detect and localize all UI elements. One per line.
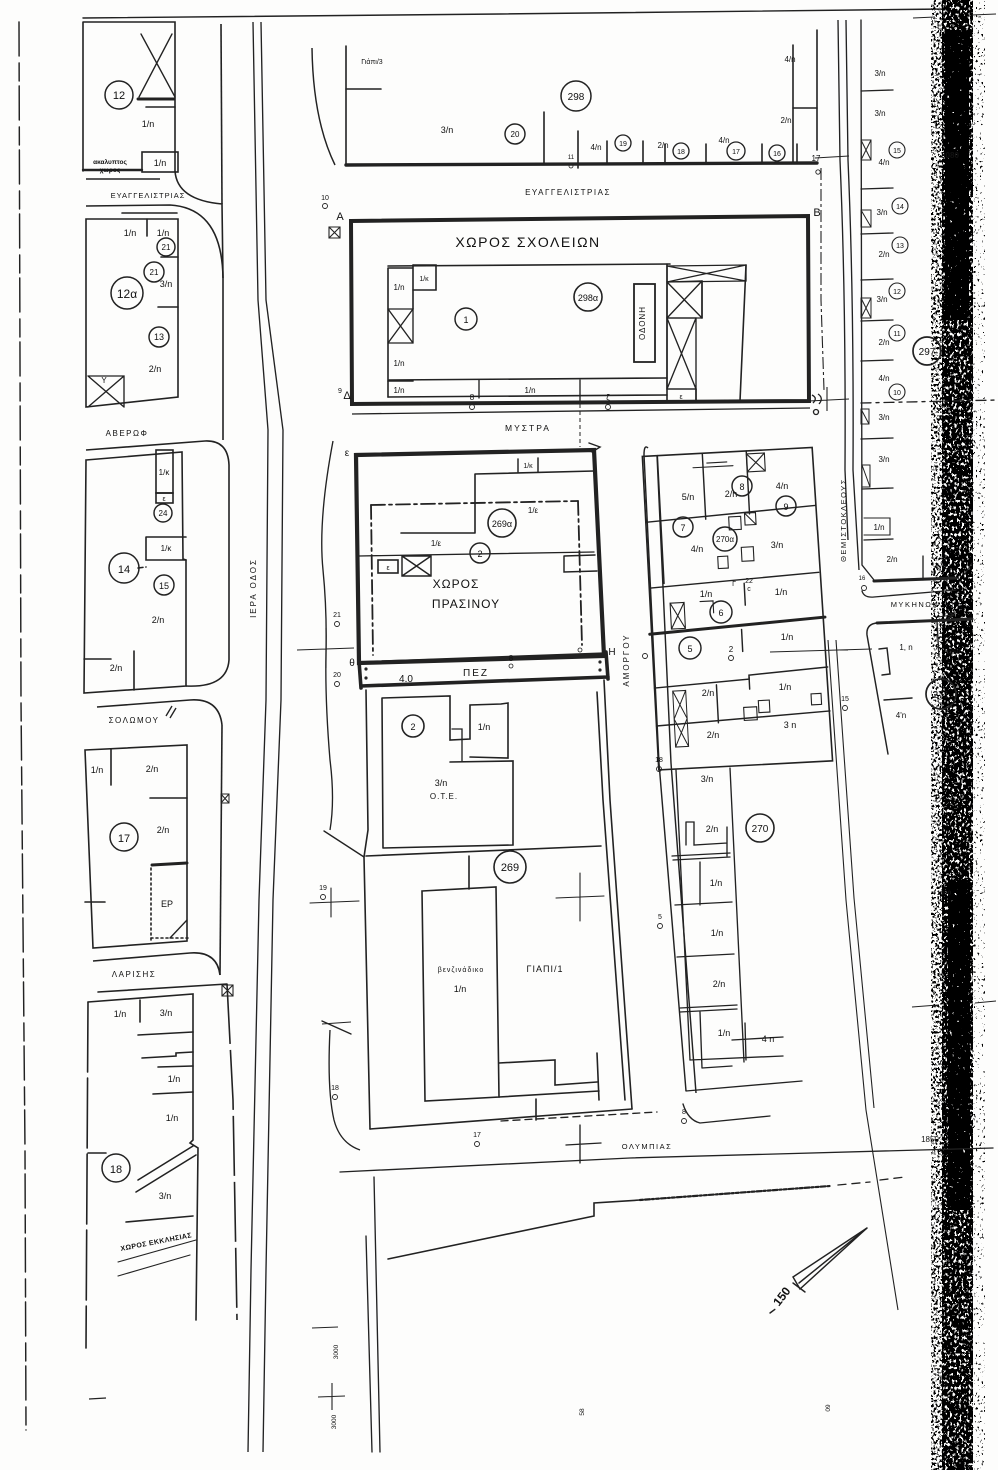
- svg-text:Υ: Υ: [101, 376, 107, 385]
- svg-text:6: 6: [718, 608, 723, 618]
- svg-text:15: 15: [893, 148, 901, 155]
- svg-text:2/n: 2/n: [878, 250, 889, 259]
- svg-text:8: 8: [470, 393, 475, 402]
- svg-text:ΕΥΑΓΓΕΛΙΣΤΡΙΑΣ: ΕΥΑΓΓΕΛΙΣΤΡΙΑΣ: [111, 191, 186, 200]
- svg-text:2/n: 2/n: [713, 979, 726, 989]
- svg-text:3 n: 3 n: [784, 720, 797, 730]
- svg-text:3000: 3000: [333, 1344, 340, 1359]
- svg-text:1/n: 1/n: [157, 228, 170, 238]
- svg-text:15: 15: [841, 696, 849, 703]
- svg-text:13: 13: [154, 332, 164, 342]
- svg-text:3/n: 3/n: [435, 778, 448, 788]
- svg-text:2/n: 2/n: [702, 688, 715, 698]
- svg-text:10: 10: [893, 390, 901, 397]
- svg-text:1850: 1850: [946, 649, 961, 656]
- svg-text:21: 21: [150, 268, 159, 277]
- svg-text:10: 10: [321, 195, 329, 202]
- svg-text:1/n: 1/n: [710, 878, 723, 888]
- svg-text:9: 9: [783, 502, 788, 512]
- svg-text:1/n: 1/n: [718, 1028, 731, 1038]
- svg-text:270: 270: [752, 824, 769, 835]
- svg-text:ε: ε: [162, 496, 165, 503]
- svg-text:A: A: [336, 211, 344, 223]
- svg-text:2/n: 2/n: [706, 824, 719, 834]
- svg-text:1/n: 1/n: [393, 359, 404, 368]
- svg-text:24: 24: [159, 509, 168, 518]
- svg-text:1/n: 1/n: [91, 765, 104, 775]
- svg-text:16: 16: [859, 576, 866, 582]
- svg-text:ΧΩΡΟΣ ΣΧΟΛΕΙΩΝ: ΧΩΡΟΣ ΣΧΟΛΕΙΩΝ: [455, 234, 600, 250]
- svg-text:3/n: 3/n: [876, 295, 887, 304]
- svg-text:1/κ: 1/κ: [161, 544, 173, 553]
- svg-text:βενζινάδικο: βενζινάδικο: [438, 966, 484, 974]
- svg-text:11: 11: [568, 155, 575, 161]
- svg-text:ΧΩΡΟΣ: ΧΩΡΟΣ: [433, 577, 480, 591]
- svg-text:17: 17: [732, 149, 740, 156]
- svg-text:4/n: 4/n: [718, 136, 729, 145]
- svg-text:4/n: 4/n: [784, 55, 795, 64]
- svg-text:ΑΜΟΡΓΟΥ: ΑΜΟΡΓΟΥ: [622, 633, 631, 686]
- svg-text:21: 21: [162, 243, 171, 252]
- svg-text:2/n: 2/n: [157, 825, 170, 835]
- svg-text:1/n: 1/n: [154, 158, 167, 168]
- svg-text:297: 297: [919, 347, 936, 358]
- svg-text:2/n: 2/n: [878, 338, 889, 347]
- svg-text:Γιάπι/3: Γιάπι/3: [361, 58, 382, 66]
- svg-text:1/n: 1/n: [454, 984, 467, 994]
- svg-text:ΕΥΑΓΓΕΛΙΣΤΡΙΑΣ: ΕΥΑΓΓΕΛΙΣΤΡΙΑΣ: [525, 188, 611, 197]
- svg-text:21: 21: [333, 612, 341, 619]
- svg-text:2/n: 2/n: [886, 555, 897, 564]
- svg-text:1/n: 1/n: [166, 1113, 179, 1123]
- svg-text:19: 19: [319, 885, 327, 892]
- svg-text:4/n: 4/n: [691, 544, 704, 554]
- svg-text:7: 7: [680, 523, 685, 533]
- svg-text:2/n: 2/n: [707, 730, 720, 740]
- svg-text:16: 16: [773, 151, 781, 158]
- svg-text:3/n: 3/n: [771, 540, 784, 550]
- svg-text:17: 17: [812, 154, 821, 163]
- svg-text:1/κ: 1/κ: [523, 463, 533, 470]
- svg-text:1/n: 1/n: [114, 1009, 127, 1019]
- svg-text:ΙΕΡΑ ΟΔΟΣ: ΙΕΡΑ ΟΔΟΣ: [249, 558, 258, 618]
- svg-text:11: 11: [893, 331, 900, 338]
- svg-text:12: 12: [113, 90, 125, 102]
- svg-text:2/n: 2/n: [657, 141, 668, 150]
- svg-text:2/n: 2/n: [110, 663, 123, 673]
- svg-text:1/n: 1/n: [935, 562, 946, 571]
- svg-text:ακαλυπτος: ακαλυπτος: [93, 158, 127, 166]
- svg-text:269α: 269α: [492, 519, 512, 529]
- svg-text:271: 271: [933, 690, 950, 701]
- svg-text:2/n: 2/n: [780, 116, 791, 125]
- svg-text:2: 2: [477, 549, 482, 559]
- svg-text:ε: ε: [345, 448, 350, 459]
- svg-text:1820: 1820: [941, 1382, 956, 1389]
- svg-text:Δ: Δ: [343, 390, 351, 402]
- svg-text:3/n: 3/n: [878, 413, 889, 422]
- svg-text:ε: ε: [386, 565, 389, 572]
- svg-text:3080: 3080: [941, 151, 959, 160]
- svg-text:5: 5: [658, 914, 662, 921]
- svg-text:4/n: 4/n: [590, 143, 601, 152]
- svg-text:4.0: 4.0: [399, 674, 413, 685]
- svg-text:1/κ: 1/κ: [419, 276, 429, 283]
- svg-text:18: 18: [331, 1085, 339, 1092]
- svg-text:12: 12: [893, 289, 901, 296]
- svg-text:58: 58: [579, 1408, 586, 1416]
- svg-text:ΣΟΛΩΜΟΥ: ΣΟΛΩΜΟΥ: [109, 716, 160, 725]
- svg-text:1/ε: 1/ε: [528, 506, 539, 515]
- svg-text:09: 09: [825, 1404, 832, 1412]
- svg-text:1/n: 1/n: [775, 587, 788, 597]
- svg-text:ε: ε: [679, 394, 682, 401]
- svg-text:1/n: 1/n: [478, 722, 491, 732]
- svg-text:1/n: 1/n: [781, 632, 794, 642]
- svg-text:ΟΛΥΜΠΙΑΣ: ΟΛΥΜΠΙΑΣ: [622, 1142, 673, 1151]
- svg-text:8: 8: [509, 654, 514, 663]
- svg-text:4/n: 4/n: [878, 158, 889, 167]
- svg-text:ΛΑΡΙΣΗΣ: ΛΑΡΙΣΗΣ: [112, 970, 156, 979]
- svg-text:22: 22: [745, 578, 753, 585]
- svg-text:χωρος: χωρος: [100, 167, 121, 174]
- svg-text:c: c: [747, 586, 751, 593]
- svg-text:1/n: 1/n: [168, 1074, 181, 1084]
- svg-text:4'n: 4'n: [896, 711, 906, 720]
- svg-text:1/n: 1/n: [393, 386, 404, 395]
- svg-text:1850: 1850: [921, 1135, 939, 1144]
- svg-text:12α: 12α: [117, 287, 137, 301]
- svg-text:θ: θ: [349, 658, 355, 669]
- svg-text:1/n: 1/n: [779, 682, 792, 692]
- svg-text:17: 17: [118, 833, 130, 845]
- svg-text:8: 8: [682, 1109, 686, 1116]
- svg-text:Η: Η: [608, 647, 615, 658]
- svg-text:9: 9: [338, 388, 342, 395]
- svg-text:Ο.Τ.Ε.: Ο.Τ.Ε.: [430, 792, 458, 801]
- svg-text:20: 20: [333, 672, 341, 679]
- svg-text:2: 2: [410, 722, 415, 732]
- svg-text:3/n: 3/n: [441, 125, 454, 135]
- svg-text:2/n: 2/n: [149, 364, 162, 374]
- svg-text:270α: 270α: [716, 535, 734, 544]
- svg-text:3/n: 3/n: [876, 208, 887, 217]
- svg-text:17: 17: [473, 1132, 481, 1139]
- svg-text:1/ε: 1/ε: [431, 539, 442, 548]
- svg-text:19: 19: [619, 141, 627, 148]
- svg-text:4 n: 4 n: [762, 1034, 775, 1044]
- svg-text:ΟΔΟΝΗ: ΟΔΟΝΗ: [638, 306, 647, 340]
- svg-text:3/n: 3/n: [159, 1191, 172, 1201]
- svg-text:1/n: 1/n: [711, 928, 724, 938]
- svg-text:298α: 298α: [578, 293, 598, 303]
- svg-text:15: 15: [159, 581, 169, 591]
- svg-text:ΑΒΕΡΩΦ: ΑΒΕΡΩΦ: [106, 429, 149, 438]
- svg-text:3000: 3000: [331, 1414, 338, 1429]
- svg-text:ΘΕΜΙΣΤΟΚΛΕΟΥΣ: ΘΕΜΙΣΤΟΚΛΕΟΥΣ: [839, 478, 848, 562]
- svg-text:14: 14: [896, 204, 904, 211]
- svg-text:ΠΕΖ: ΠΕΖ: [463, 668, 489, 679]
- svg-text:14: 14: [118, 564, 130, 576]
- svg-text:3/n: 3/n: [878, 455, 889, 464]
- svg-text:18: 18: [110, 1164, 122, 1176]
- svg-text:ΕΡ: ΕΡ: [161, 899, 173, 909]
- svg-text:5/n: 5/n: [682, 492, 695, 502]
- svg-text:1/κ: 1/κ: [159, 468, 171, 477]
- svg-text:4/n: 4/n: [776, 481, 789, 491]
- svg-text:1/n: 1/n: [393, 283, 404, 292]
- svg-text:269: 269: [501, 862, 519, 874]
- svg-text:8: 8: [739, 482, 744, 492]
- svg-text:298: 298: [568, 92, 585, 103]
- svg-text:3/n: 3/n: [874, 109, 885, 118]
- svg-text:3/n: 3/n: [160, 279, 173, 289]
- svg-text:18: 18: [677, 149, 685, 156]
- svg-text:1/n: 1/n: [700, 589, 713, 599]
- svg-text:3/n: 3/n: [874, 69, 885, 78]
- svg-text:1/n: 1/n: [524, 386, 535, 395]
- svg-text:ΓΙΑΠΙ/1: ΓΙΑΠΙ/1: [527, 964, 564, 974]
- svg-text:13: 13: [896, 243, 904, 250]
- svg-text:Γ: Γ: [732, 581, 736, 588]
- svg-text:3/n: 3/n: [701, 774, 714, 784]
- svg-text:3/n: 3/n: [160, 1008, 173, 1018]
- svg-text:ΠΡΑΣΙΝΟΥ: ΠΡΑΣΙΝΟΥ: [432, 597, 500, 611]
- svg-text:ΜΥΣΤΡΑ: ΜΥΣΤΡΑ: [505, 423, 551, 433]
- svg-text:2/n: 2/n: [152, 615, 165, 625]
- svg-text:B: B: [813, 207, 820, 219]
- svg-text:1, n: 1, n: [899, 643, 912, 652]
- svg-text:5: 5: [687, 644, 692, 654]
- svg-text:1: 1: [463, 315, 468, 325]
- svg-text:1/n: 1/n: [873, 523, 884, 532]
- svg-text:ζ: ζ: [606, 393, 610, 402]
- svg-text:ΜΥΚΗΝΩΝ: ΜΥΚΗΝΩΝ: [891, 600, 940, 609]
- svg-text:4/n: 4/n: [878, 374, 889, 383]
- svg-text:2: 2: [729, 645, 734, 654]
- svg-text:20: 20: [511, 130, 520, 139]
- svg-text:2/n: 2/n: [146, 764, 159, 774]
- svg-text:1/n: 1/n: [142, 119, 155, 129]
- svg-text:18: 18: [655, 757, 663, 764]
- svg-text:1900: 1900: [937, 890, 952, 897]
- svg-text:1/n: 1/n: [124, 228, 137, 238]
